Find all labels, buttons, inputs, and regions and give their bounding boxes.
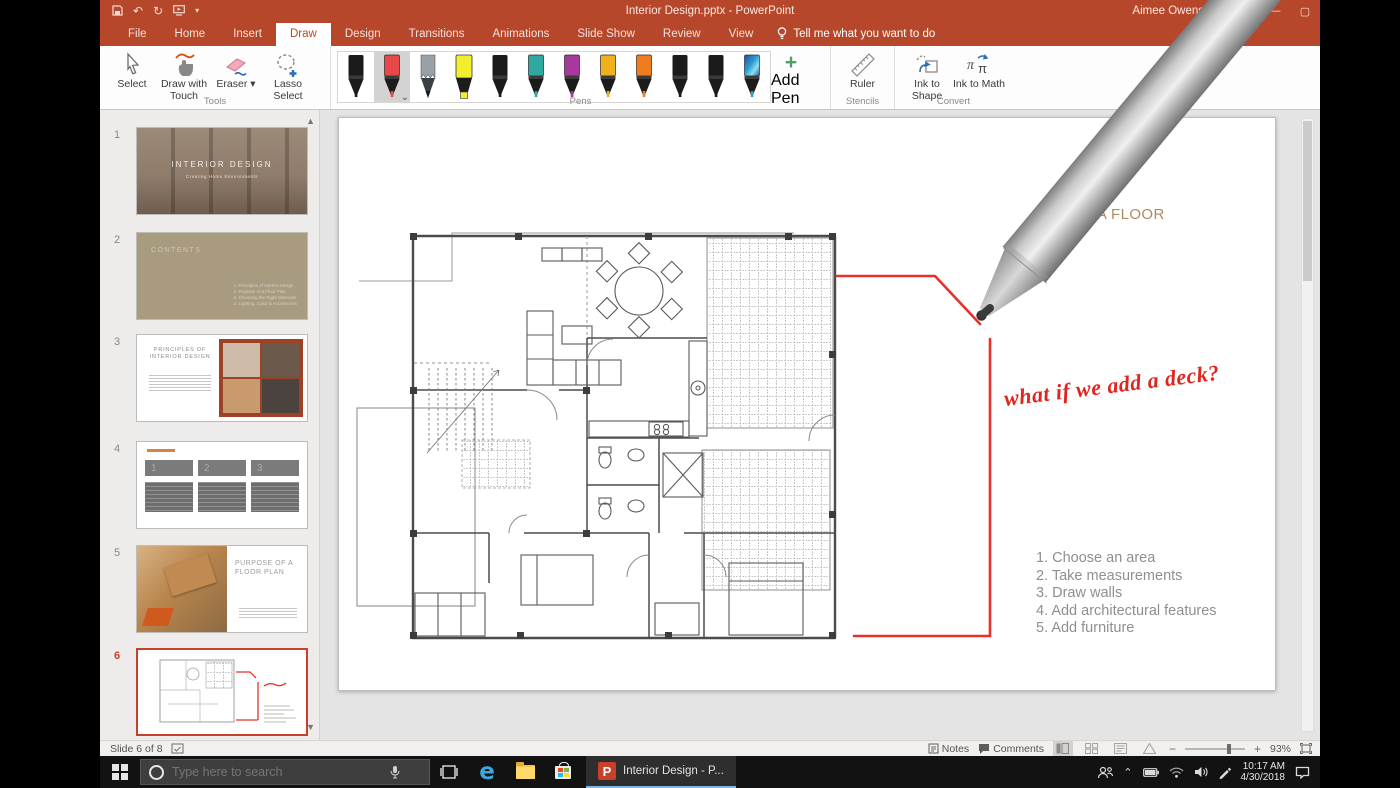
notes-button[interactable]: Notes — [928, 743, 969, 755]
steps-list: 1. Choose an area 2. Take measurements 3… — [1036, 550, 1217, 638]
pen-yellow-highlighter[interactable] — [446, 52, 482, 102]
slide-number: 1 — [114, 129, 120, 141]
microphone-icon[interactable] — [390, 765, 400, 779]
ink-to-shape-icon — [914, 52, 940, 78]
search-input[interactable] — [172, 765, 382, 779]
slide-number: 5 — [114, 547, 120, 559]
zoom-slider-thumb[interactable] — [1227, 744, 1231, 754]
title-bar: ↶ ↻ ▾ Interior Design.pptx - PowerPoint … — [100, 0, 1320, 22]
eraser-icon — [223, 52, 249, 78]
thumb1-subtitle: Creating Home Environments — [137, 174, 307, 179]
ribbon-tab-row: File Home Insert Draw Design Transitions… — [100, 22, 1320, 46]
group-label-convert: Convert — [895, 96, 1012, 107]
tab-home[interactable]: Home — [161, 23, 220, 46]
select-button[interactable]: Select — [106, 50, 158, 91]
volume-icon[interactable] — [1194, 766, 1208, 778]
cursor-icon — [120, 52, 144, 78]
pen-black-effect-pen-2[interactable] — [698, 52, 734, 102]
microsoft-store-icon[interactable] — [544, 756, 582, 788]
slide-number: 2 — [114, 234, 120, 246]
canvas-scrollbar[interactable] — [1301, 118, 1314, 732]
ruler-icon — [850, 52, 876, 78]
fit-to-window-icon[interactable] — [1300, 743, 1312, 754]
taskbar-powerpoint-button[interactable]: P Interior Design - P... — [586, 756, 736, 788]
tab-transitions[interactable]: Transitions — [395, 23, 479, 46]
lasso-icon — [275, 52, 301, 78]
thumbnail-slide-1[interactable]: 1 INTERIOR DESIGN Creating Home Environm… — [100, 127, 320, 215]
save-icon[interactable] — [112, 5, 123, 18]
status-bar: Slide 6 of 8 Notes Comments — [100, 740, 1320, 756]
ink-to-shape-button[interactable]: Ink to Shape — [901, 50, 953, 102]
group-label-tools: Tools — [100, 96, 330, 107]
ribbon-display-options-icon[interactable] — [1230, 0, 1260, 22]
thumbnail-slide-2[interactable]: 2 CONTENTS 1. Principles of Interior Des… — [100, 232, 320, 320]
pen-black-marker-1[interactable] — [338, 52, 374, 102]
tab-design[interactable]: Design — [331, 23, 395, 46]
ruler-button[interactable]: Ruler — [837, 50, 888, 91]
system-tray: ⌃ 10:17 AM 4/30/2018 — [1097, 761, 1320, 783]
thumbnail-slide-5[interactable]: 5 PURPOSE OF A FLOOR PLAN — [100, 545, 320, 633]
normal-view-button[interactable] — [1053, 741, 1073, 756]
tab-view[interactable]: View — [715, 23, 768, 46]
zoom-level[interactable]: 93% — [1270, 743, 1291, 755]
eraser-button[interactable]: Eraser ▾ — [210, 50, 262, 91]
pen-red-pen[interactable]: ⌄ — [374, 52, 410, 102]
pen-gray-pencil[interactable] — [410, 52, 446, 102]
tray-overflow-chevron[interactable]: ⌃ — [1123, 766, 1132, 779]
tab-slide-show[interactable]: Slide Show — [563, 23, 649, 46]
thumb4-title-bar — [147, 449, 175, 452]
slide-number: 6 — [114, 650, 120, 662]
tab-draw[interactable]: Draw — [276, 23, 331, 46]
ink-to-math-button[interactable]: ππ Ink to Math — [953, 50, 1005, 91]
group-convert: Ink to Shape ππ Ink to Math Convert — [894, 46, 1012, 109]
thumb2-title: CONTENTS — [151, 247, 202, 254]
redo-icon[interactable]: ↻ — [153, 5, 163, 17]
thumb3-photo-collage — [219, 339, 303, 417]
thumbnail-slide-3[interactable]: 3 PRINCIPLES OF INTERIOR DESIGN — [100, 334, 320, 422]
edge-browser-icon[interactable]: e — [468, 756, 506, 788]
wifi-icon[interactable] — [1169, 767, 1184, 778]
plus-icon: + — [785, 54, 797, 72]
slide-canvas: CREATE A FLOOR PLAN — [320, 110, 1320, 740]
group-stencils: Ruler Stencils — [830, 46, 894, 109]
slide-thumbnail-panel: ▲ 1 INTERIOR DESIGN Creating Home Enviro… — [100, 110, 320, 740]
undo-icon[interactable]: ↶ — [133, 5, 143, 17]
taskbar-app-label: Interior Design - P... — [623, 765, 724, 777]
customize-qat-icon[interactable]: ▾ — [195, 5, 199, 17]
tab-file[interactable]: File — [114, 23, 161, 46]
pen-black-effect-pen-1[interactable] — [662, 52, 698, 102]
file-explorer-icon[interactable] — [506, 756, 544, 788]
slide-show-button[interactable] — [1140, 741, 1160, 756]
tab-insert[interactable]: Insert — [219, 23, 276, 46]
thumbnail-slide-6[interactable]: 6 — [100, 648, 320, 736]
taskbar-search[interactable] — [140, 759, 430, 785]
scroll-down-icon[interactable]: ▼ — [306, 722, 315, 732]
ink-to-math-icon: ππ — [966, 52, 992, 78]
thumb3-paragraph — [149, 375, 211, 393]
tell-me-label: Tell me what you want to do — [793, 28, 935, 40]
zoom-slider[interactable] — [1185, 748, 1245, 750]
pen-settings-icon[interactable] — [1218, 766, 1231, 779]
group-label-stencils: Stencils — [831, 96, 894, 107]
quick-access-toolbar: ↶ ↻ ▾ — [100, 5, 199, 18]
thumb2-list: 1. Principles of Interior Design2. Purpo… — [233, 283, 297, 307]
pen-gold-pen[interactable] — [590, 52, 626, 102]
display-settings-icon[interactable] — [171, 743, 184, 754]
thumb5-photo — [137, 546, 227, 632]
lasso-select-button[interactable]: Lasso Select — [262, 50, 314, 102]
taskbar-clock[interactable]: 10:17 AM 4/30/2018 — [1241, 761, 1286, 783]
pen-galaxy-pen[interactable] — [734, 52, 770, 102]
minimize-button[interactable]: — — [1260, 0, 1290, 22]
slide-indicator: Slide 6 of 8 — [110, 743, 163, 755]
thumb1-title: INTERIOR DESIGN — [137, 160, 307, 169]
people-icon[interactable] — [1097, 766, 1113, 779]
thumbnail-slide-4[interactable]: 4 1 2 3 — [100, 441, 320, 529]
thumb6-mini-floorplan — [138, 650, 306, 734]
pen-teal-pen[interactable] — [518, 52, 554, 102]
zoom-out-button[interactable]: − — [1169, 742, 1176, 756]
thumb5-paragraph — [239, 608, 297, 620]
start-from-beginning-icon[interactable] — [173, 5, 185, 18]
powerpoint-window: ↶ ↻ ▾ Interior Design.pptx - PowerPoint … — [100, 0, 1320, 788]
group-label-pens: Pens — [331, 96, 830, 107]
windows-logo-icon — [112, 764, 128, 780]
reading-view-button[interactable] — [1111, 741, 1131, 756]
windows-taskbar: e P Interior Design - P... ⌃ 10:17 AM 4/… — [100, 756, 1320, 788]
comments-icon — [978, 743, 990, 754]
slide-number: 4 — [114, 443, 120, 455]
lightbulb-icon — [777, 27, 787, 40]
ribbon-draw: Select Draw with Touch Eraser ▾ Lasso Se… — [100, 46, 1320, 110]
zoom-in-button[interactable]: + — [1254, 742, 1261, 756]
task-view-button[interactable] — [430, 756, 468, 788]
pen-orange-pen[interactable] — [626, 52, 662, 102]
current-slide[interactable]: CREATE A FLOOR PLAN — [338, 117, 1276, 691]
tab-animations[interactable]: Animations — [478, 23, 563, 46]
comments-button[interactable]: Comments — [978, 743, 1044, 755]
action-center-icon[interactable] — [1295, 766, 1310, 779]
powerpoint-icon: P — [598, 762, 616, 780]
tell-me-box[interactable]: Tell me what you want to do — [767, 22, 945, 46]
workspace: ▲ 1 INTERIOR DESIGN Creating Home Enviro… — [100, 110, 1320, 740]
scroll-up-icon[interactable]: ▲ — [306, 116, 315, 126]
tab-review[interactable]: Review — [649, 23, 715, 46]
start-button[interactable] — [100, 756, 140, 788]
photo-window — [137, 128, 307, 214]
account-name[interactable]: Aimee Owens — [1132, 5, 1204, 17]
maximize-button[interactable]: ▢ — [1290, 0, 1320, 22]
slide-number: 3 — [114, 336, 120, 348]
touch-hand-icon — [171, 52, 197, 78]
group-tools: Select Draw with Touch Eraser ▾ Lasso Se… — [100, 46, 330, 109]
notes-icon — [928, 743, 939, 754]
thumb3-title: PRINCIPLES OF INTERIOR DESIGN — [145, 347, 215, 361]
svg-text:π: π — [978, 61, 987, 76]
cortana-icon — [149, 765, 164, 780]
group-pens: ⌄ + AddPen ▾ Pens — [330, 46, 830, 109]
slide-sorter-view-button[interactable] — [1082, 741, 1102, 756]
svg-text:π: π — [967, 58, 975, 73]
pen-black-marker-2[interactable] — [482, 52, 518, 102]
thumb5-title: PURPOSE OF A FLOOR PLAN — [235, 560, 297, 577]
battery-icon[interactable] — [1143, 768, 1159, 777]
pen-magenta-pen[interactable] — [554, 52, 590, 102]
ink-handwriting: what if we add a deck? — [1003, 360, 1221, 411]
draw-with-touch-button[interactable]: Draw with Touch — [158, 50, 210, 102]
